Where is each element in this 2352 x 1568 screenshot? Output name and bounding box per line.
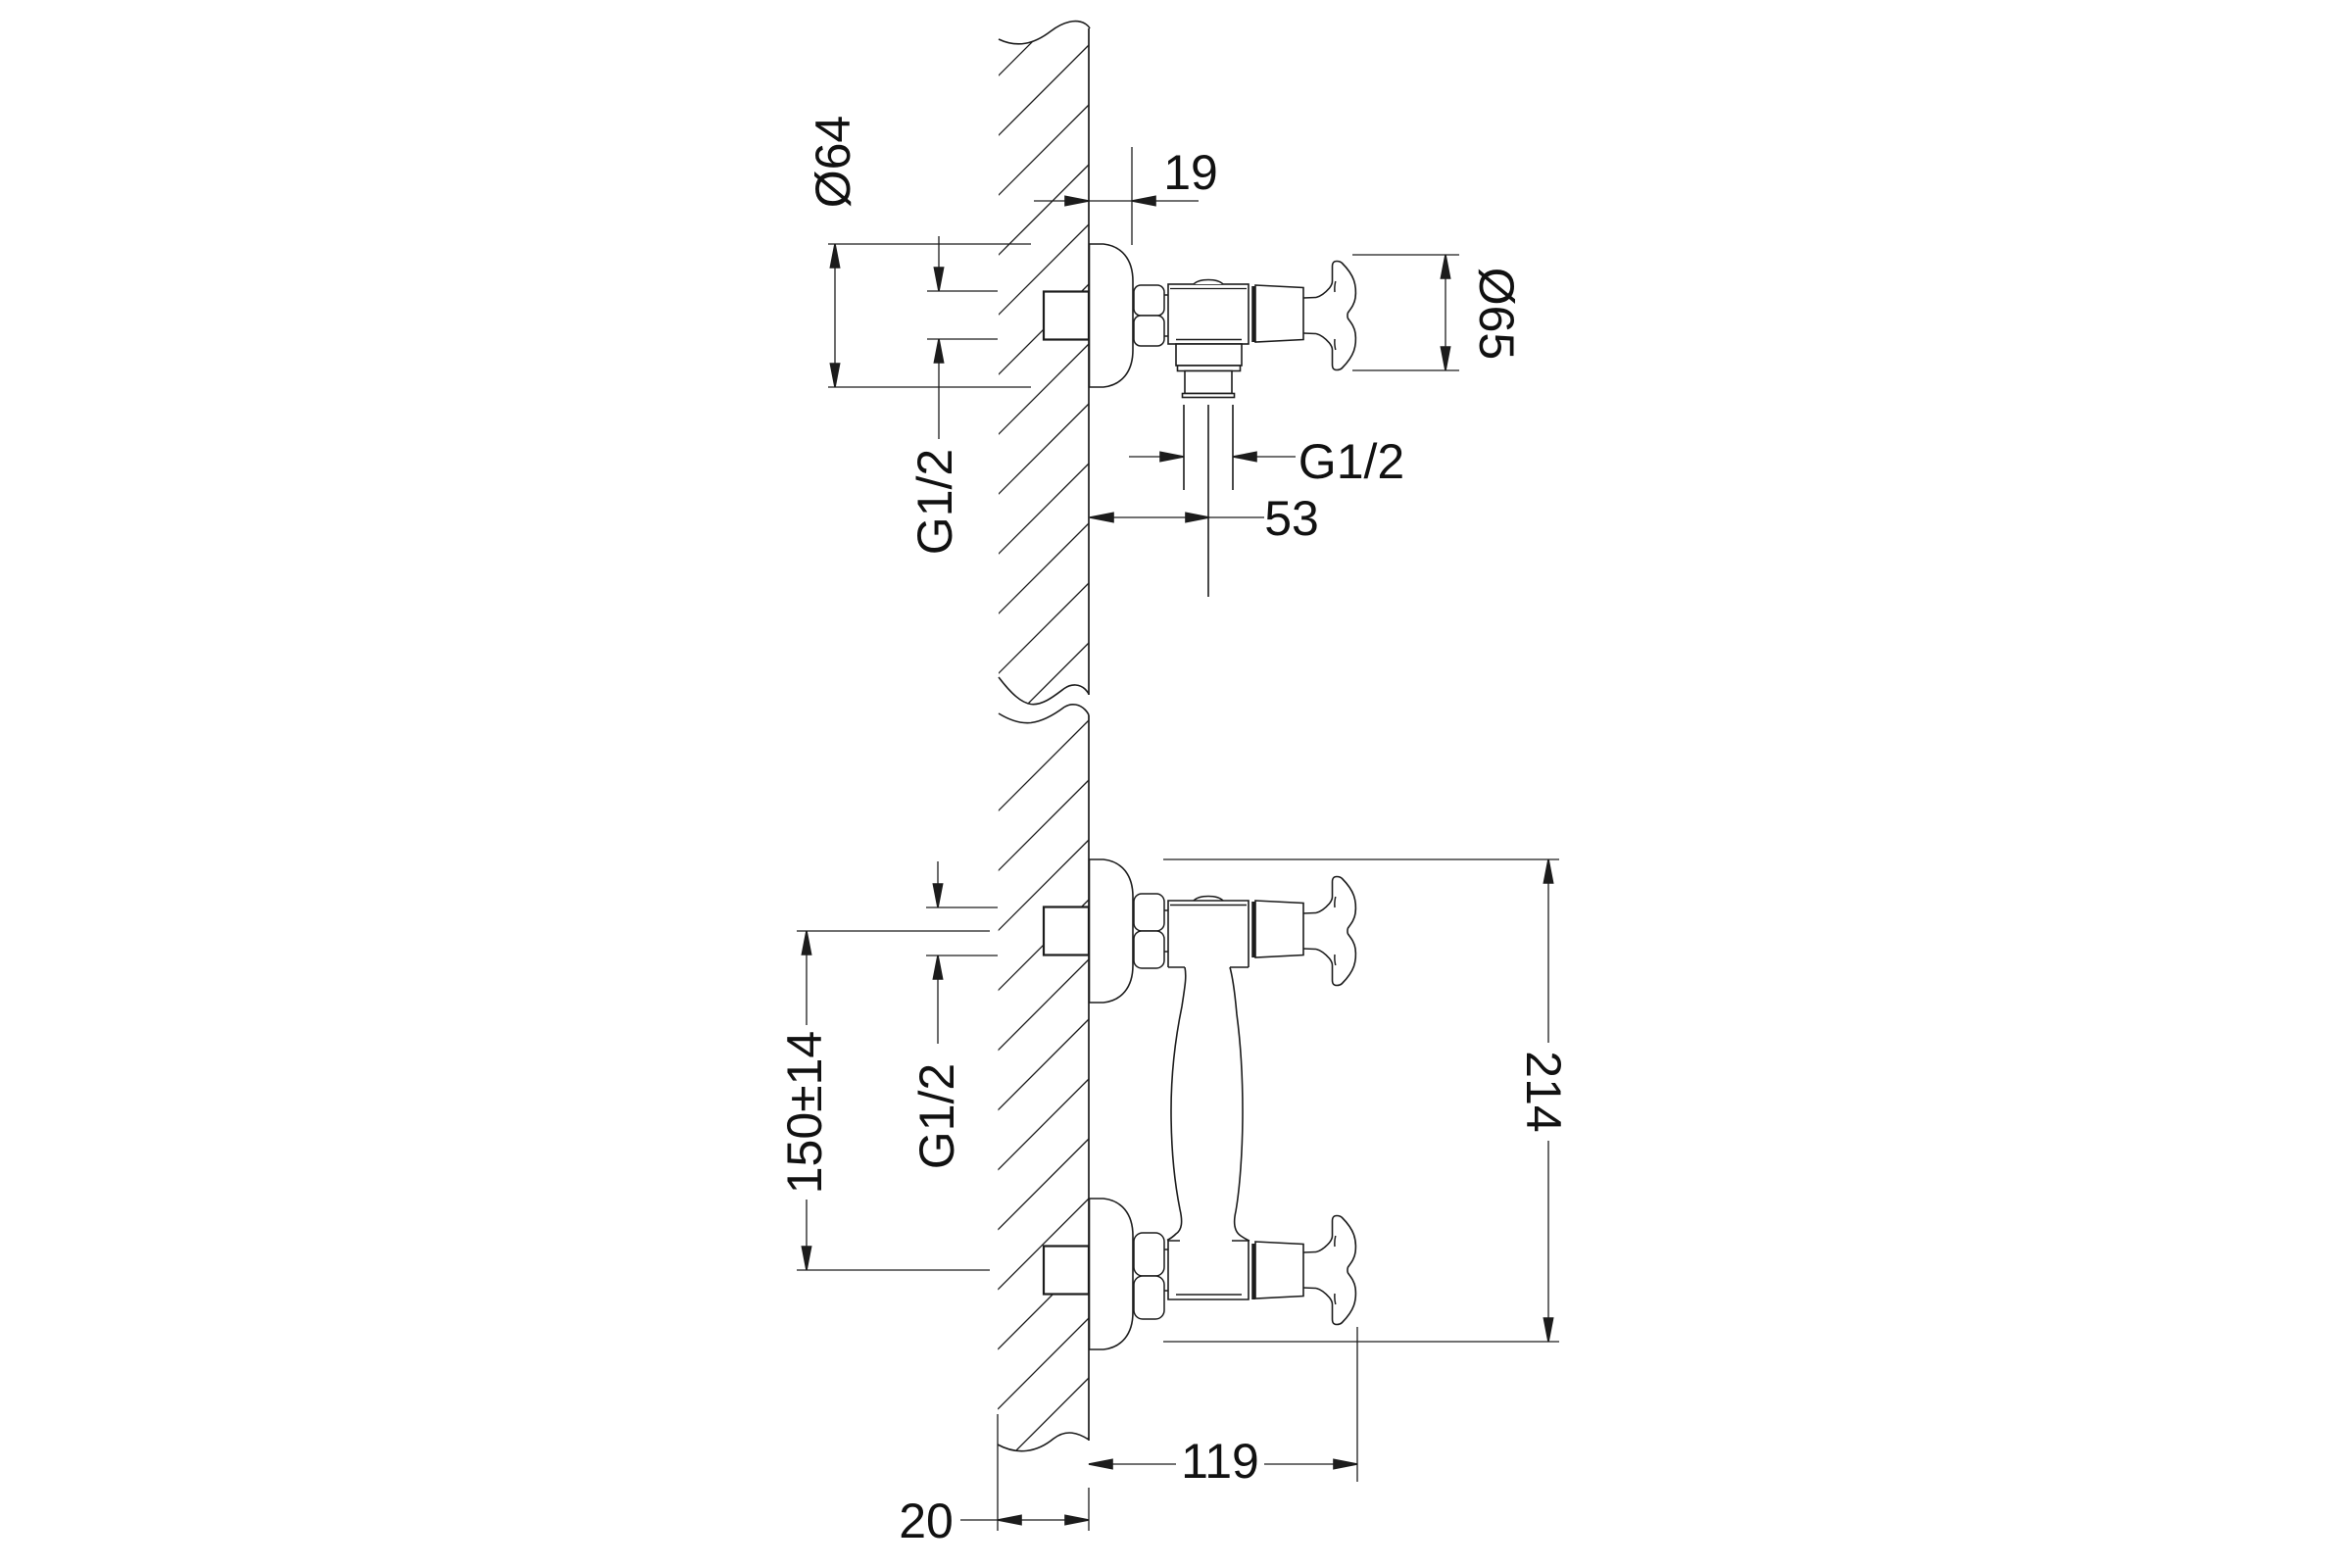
svg-text:214: 214 bbox=[1516, 1051, 1571, 1132]
svg-text:19: 19 bbox=[1163, 145, 1218, 200]
svg-text:G1/2: G1/2 bbox=[1298, 434, 1404, 489]
svg-text:20: 20 bbox=[899, 1494, 954, 1548]
svg-text:53: 53 bbox=[1264, 491, 1319, 546]
svg-text:G1/2: G1/2 bbox=[909, 1063, 964, 1169]
svg-text:150±14: 150±14 bbox=[777, 1031, 832, 1194]
svg-text:Ø64: Ø64 bbox=[806, 116, 860, 209]
svg-text:119: 119 bbox=[1181, 1434, 1259, 1489]
svg-text:Ø65: Ø65 bbox=[1469, 268, 1524, 361]
svg-text:G1/2: G1/2 bbox=[907, 449, 962, 555]
